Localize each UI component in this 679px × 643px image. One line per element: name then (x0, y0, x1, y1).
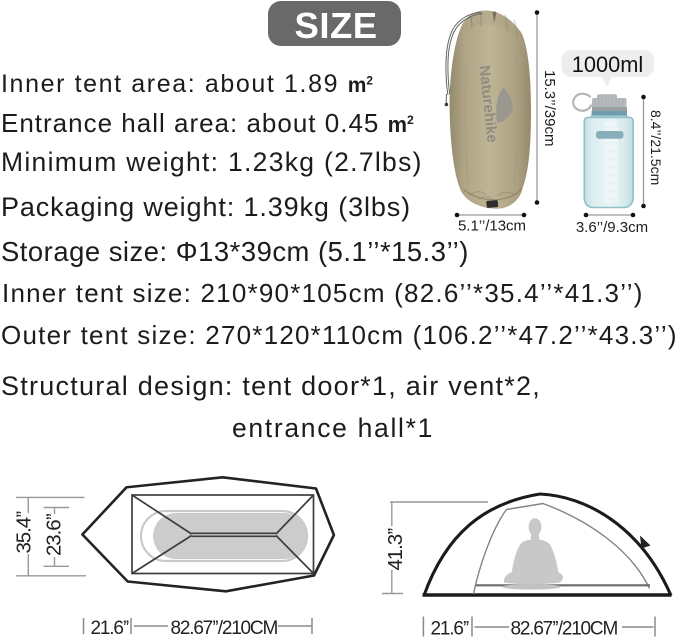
svg-text:15.3’’/39cm: 15.3’’/39cm (541, 70, 558, 146)
svg-text:23.6’’: 23.6’’ (43, 513, 66, 556)
svg-text:1000ml: 1000ml (572, 52, 644, 77)
svg-text:5.1’’/13cm: 5.1’’/13cm (458, 218, 526, 235)
svg-text:82.67’’/210CM: 82.67’’/210CM (511, 619, 618, 640)
svg-text:21.6’’: 21.6’’ (431, 619, 470, 640)
svg-text:3.6’’/9.3cm: 3.6’’/9.3cm (576, 219, 648, 236)
svg-text:35.4’’: 35.4’’ (13, 511, 36, 554)
svg-text:82.67’’/210CM: 82.67’’/210CM (171, 618, 278, 639)
svg-text:8.4’’/21.5cm: 8.4’’/21.5cm (648, 110, 664, 185)
svg-text:21.6’’: 21.6’’ (91, 618, 130, 639)
svg-text:41.3’’: 41.3’’ (384, 528, 407, 571)
